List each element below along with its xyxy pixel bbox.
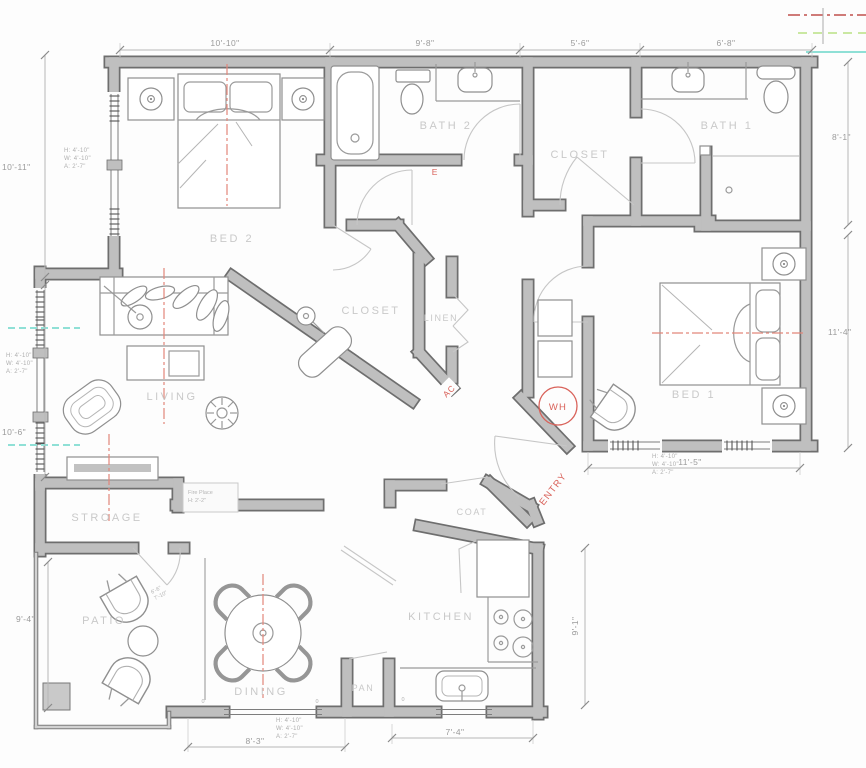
fireplace-note-line1: Fire Place [188,490,213,496]
window-annotations: H: 4'-10" W: 4'-10" A: 2'-7" H: 4'-10" W… [6,148,679,740]
room-label-coat: COAT [457,507,488,517]
patio-furniture [95,567,158,714]
living-window-note-w: W: 4'-10" [6,361,33,367]
patio-column [43,683,70,710]
dining-window-note-w: W: 4'-10" [276,726,303,732]
room-label-storage: STROAGE [71,512,142,524]
room-label-linen: LINEN [424,313,459,323]
bed2-window-note-w: W: 4'-10" [64,156,91,162]
room-label-dining: DINING [234,686,288,698]
room-label-pantry: PAN [352,683,375,693]
dim-right-3: 9'-1" [570,617,580,636]
dim-left-3: 9'-4" [16,614,35,624]
bed1-window-note-h: H: 4'-10" [652,454,678,460]
dining-window-note-a: A: 2'-7" [276,734,298,740]
door-mark-1: 0 [201,699,204,705]
room-label-bed2: BED 2 [210,233,254,245]
room-label-patio: PATIO [82,615,126,627]
red-labels: E AC ENTRY [432,167,570,508]
room-label-bed1: BED 1 [672,389,716,401]
dim-top-1: 10'-10" [210,38,239,48]
living-furniture [57,277,238,480]
dim-right-1: 8'-1" [832,132,851,142]
room-label-living: LIVING [146,391,197,403]
door-mark-2: 0 [315,699,318,705]
dim-bottom-2: 7'-4" [446,727,465,737]
dim-right-2: 11'-4" [828,327,851,337]
dim-left-1: 10'-11" [2,162,31,172]
fireplace-note-line2: H: 2'-2" [188,498,206,504]
dim-top-2: 9'-8" [416,38,435,48]
bed2-window-note-h: H: 4'-10" [64,148,90,154]
room-label-closet-top: CLOSET [550,149,609,161]
hall-cabinets [538,300,572,377]
windows [33,94,770,715]
dim-bottom-1: 8'-3" [246,736,265,746]
room-label-kitchen: KITCHEN [408,611,474,623]
bed2-furniture [128,74,324,208]
floor-plan-page: Fire Place H: 2'-2" WH [0,0,866,768]
closet-mid-fixtures [294,307,356,382]
dim-top-4: 6'-8" [717,38,736,48]
living-window-note-h: H: 4'-10" [6,353,32,359]
entry-label: ENTRY [537,471,569,508]
bed2-window-note-a: A: 2'-7" [64,164,86,170]
bed1-window-note-a: A: 2'-7" [652,470,674,476]
room-label-closet-mid: CLOSET [341,305,400,317]
dining-window-note-h: H: 4'-10" [276,718,302,724]
dim-bed1-interior: 11'-5" [678,457,701,467]
bed1-window-note-w: W: 4'-10" [652,462,679,468]
door-mark-3: 0 [401,697,404,703]
dim-left-2: 10'-6" [2,427,26,437]
room-label-bath1: BATH 1 [701,120,754,132]
floor-plan-canvas: Fire Place H: 2'-2" WH [0,0,866,768]
bed1-furniture [582,248,806,437]
electrical-label: E [432,167,438,177]
water-heater-label: WH [549,402,567,413]
fireplace-note: Fire Place H: 2'-2" [183,483,238,512]
living-window-note-a: A: 2'-7" [6,369,28,375]
water-heater: WH [539,387,577,425]
dim-top-3: 5'-6" [571,38,590,48]
room-label-bath2: BATH 2 [420,120,473,132]
